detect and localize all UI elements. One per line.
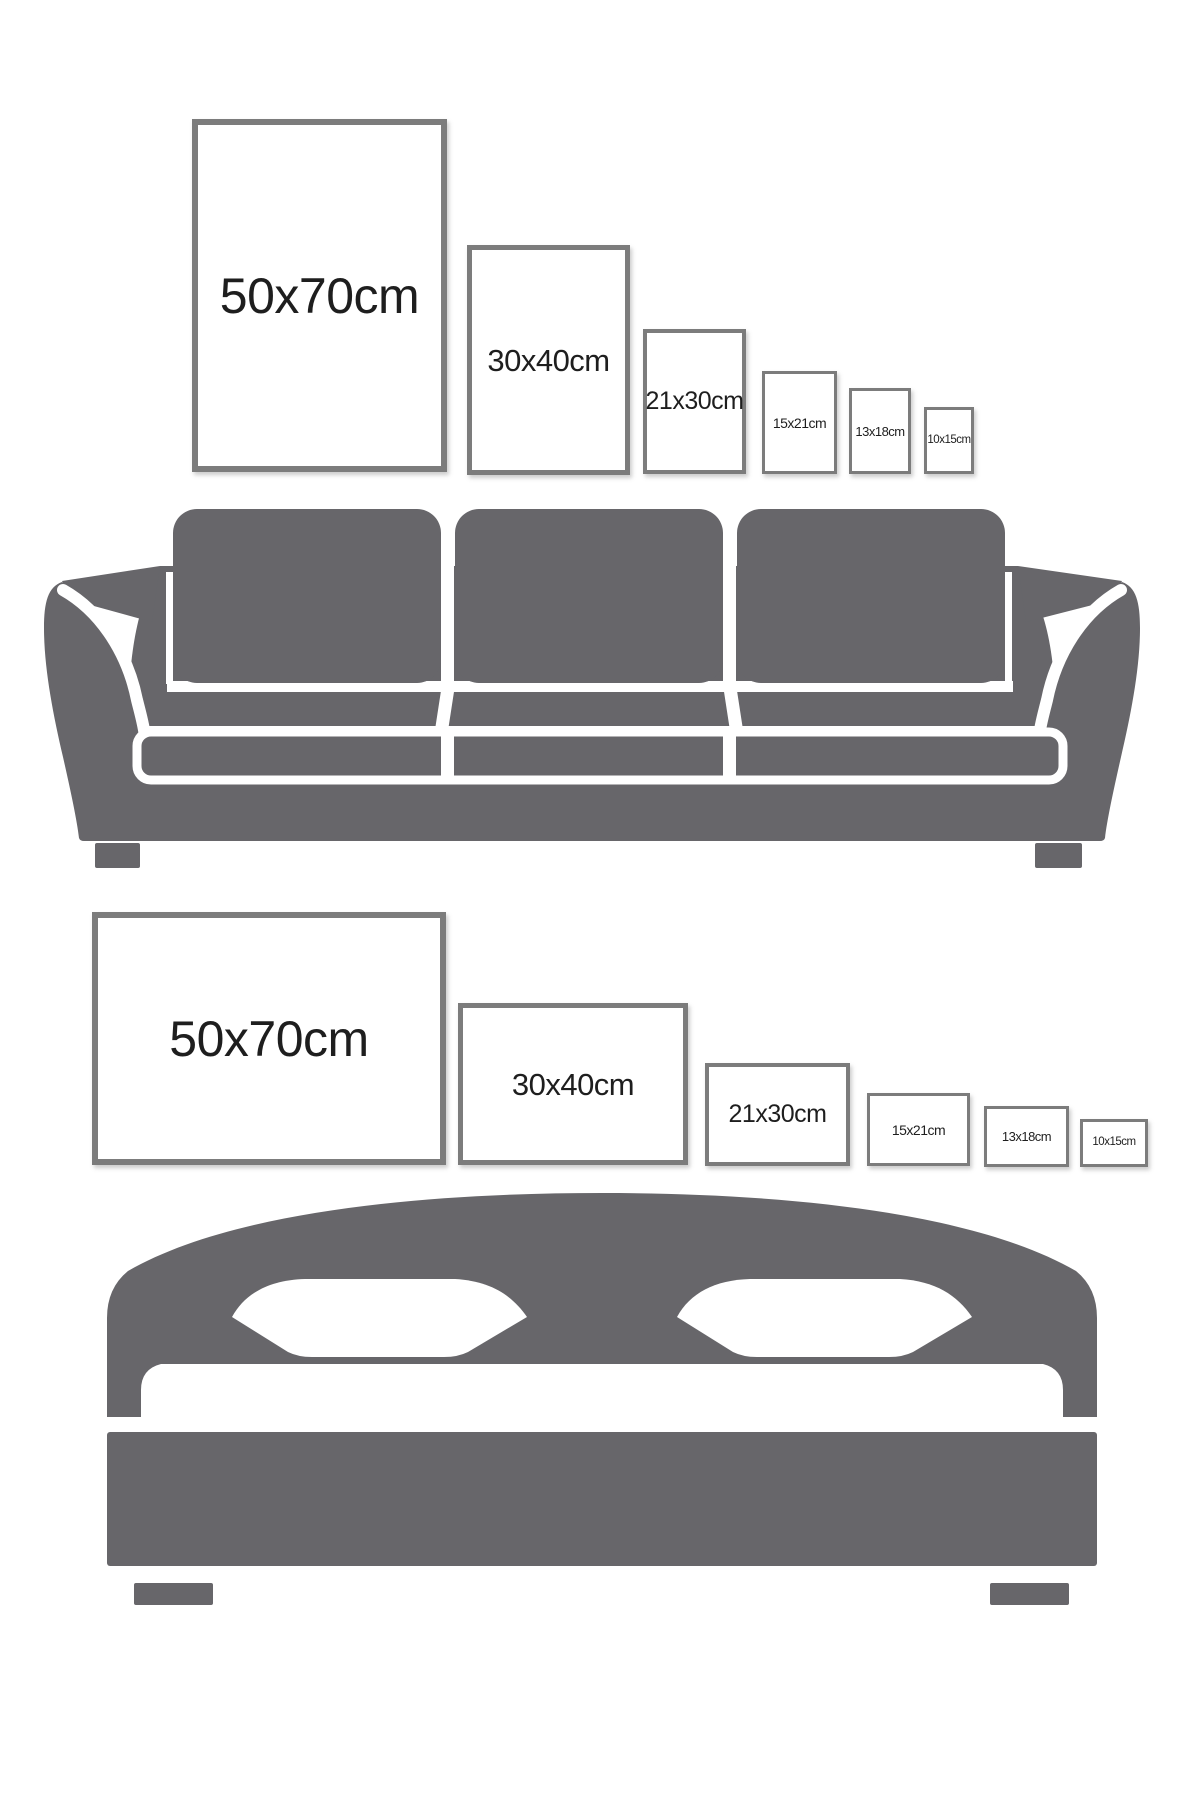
frame-portrait-50x70: 50x70cm (192, 119, 447, 472)
frame-landscape-30x40: 30x40cm (458, 1003, 688, 1165)
frame-size-label: 30x40cm (512, 1069, 634, 1100)
frame-size-label: 21x30cm (646, 389, 744, 414)
frame-size-label: 15x21cm (892, 1123, 945, 1137)
frame-portrait-15x21: 15x21cm (762, 371, 837, 474)
frame-size-label: 21x30cm (729, 1102, 827, 1127)
frame-size-label: 30x40cm (487, 345, 609, 376)
frame-landscape-50x70: 50x70cm (92, 912, 446, 1165)
frame-landscape-13x18: 13x18cm (984, 1106, 1069, 1167)
frame-portrait-10x15: 10x15cm (924, 407, 974, 474)
poster-size-guide: 50x70cm 30x40cm 21x30cm 15x21cm 13x18cm … (0, 0, 1200, 1800)
frame-landscape-10x15: 10x15cm (1080, 1119, 1148, 1167)
frame-landscape-15x21: 15x21cm (867, 1093, 970, 1166)
frame-landscape-21x30: 21x30cm (705, 1063, 850, 1166)
frame-portrait-30x40: 30x40cm (467, 245, 630, 475)
sofa-icon (0, 490, 1200, 880)
frame-size-label: 50x70cm (169, 1014, 368, 1064)
bed-icon (0, 1180, 1200, 1620)
frame-portrait-13x18: 13x18cm (849, 388, 911, 474)
frame-size-label: 13x18cm (855, 425, 904, 438)
frame-size-label: 10x15cm (1092, 1137, 1135, 1149)
frame-size-label: 50x70cm (220, 271, 419, 321)
frame-size-label: 15x21cm (773, 416, 826, 430)
frame-portrait-21x30: 21x30cm (643, 329, 746, 474)
frame-size-label: 10x15cm (927, 435, 970, 447)
frame-size-label: 13x18cm (1002, 1130, 1051, 1143)
